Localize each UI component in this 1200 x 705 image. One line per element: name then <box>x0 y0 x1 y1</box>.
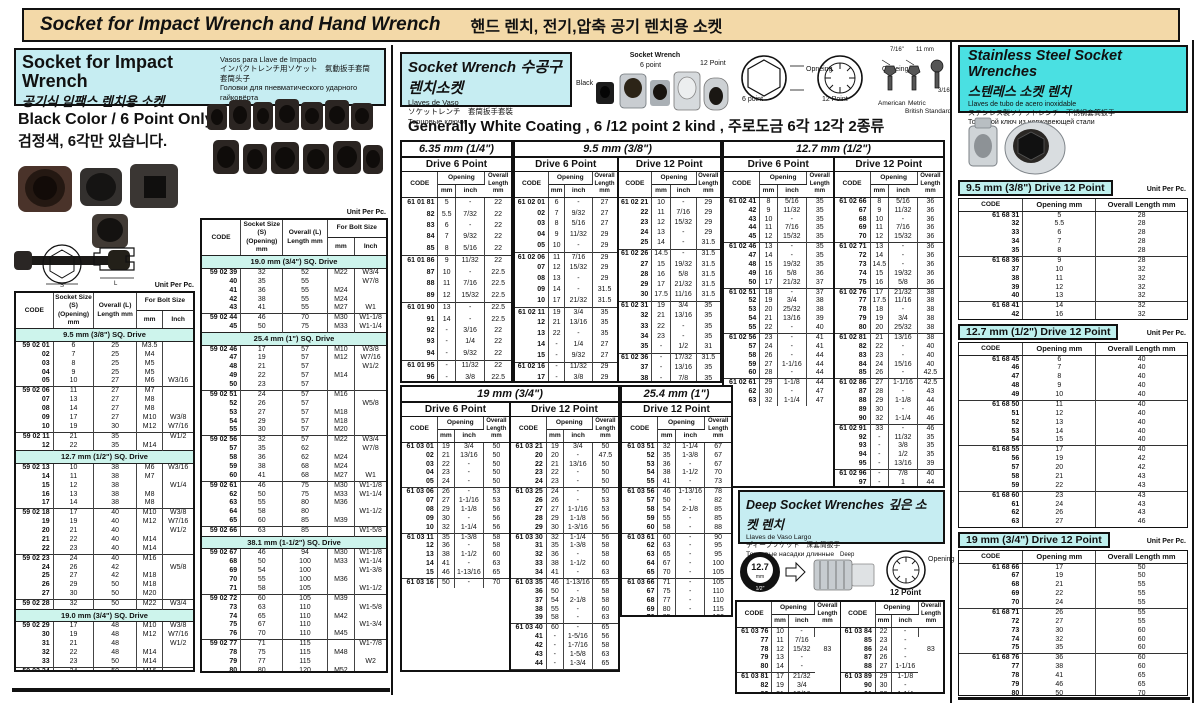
table-row: 2626-53 <box>511 497 618 506</box>
stainless-19-chip: 19 mm (3/4") Drive 12 Point <box>958 532 1110 548</box>
stainless-subtitle-es: Llaves de tubo de acero inoxidable <box>968 100 1178 109</box>
table-19-box: 19 mm (3/4") Drive 6 Point CODEOpeningOv… <box>400 385 620 672</box>
table-row: 61 03 4060-65 <box>511 624 618 633</box>
table-row: 612443 <box>959 501 1187 510</box>
table-row: 96-3/822.5 <box>402 373 511 381</box>
table-row: 9114-22.5 <box>402 314 511 325</box>
spec-table: CODEOpeningOverall Length mmmminch61 02 … <box>835 172 944 486</box>
table-row: 5541-73 <box>622 478 731 487</box>
unit-label-2: Unit Per Pc. <box>312 209 386 216</box>
table-row: 33628 <box>959 229 1187 238</box>
table-row: 784165 <box>959 672 1187 681</box>
impact-table-2: CODESocket Size (S) (Opening) mmOverall … <box>202 220 386 671</box>
table-row: 29301-3/1656 <box>511 524 618 533</box>
section-header-row: 19.0 mm (3/4") SQ. Drive <box>202 256 386 269</box>
table-row: 222340M14 <box>16 545 193 554</box>
table-row: 802025/3238 <box>835 324 944 333</box>
table-row: 59 02 232440M16 <box>16 554 193 563</box>
table-row: 583662M24 <box>202 454 386 463</box>
table-row: 6365-95 <box>622 551 731 560</box>
diagram-6point-label: 6 point <box>640 62 661 69</box>
table-row: 7055100M36 <box>202 576 386 585</box>
table-row: 5750-82 <box>622 497 731 506</box>
table-row: 61 03 35461-13/1665 <box>511 578 618 587</box>
deep-table-right: CODEOpeningOverall Length mmmminch61 03 … <box>841 602 944 692</box>
table-row: 273050M20 <box>16 590 193 599</box>
table-row: 805070 <box>959 690 1187 696</box>
table-row: 61 02 4613-35 <box>724 243 833 252</box>
table-row: 67911/3236 <box>835 207 944 216</box>
table-19-6pt-label: Drive 6 Point <box>402 403 509 417</box>
table-row: 61 02 6685/1636 <box>835 197 944 206</box>
table-row: 61 68 712655 <box>959 608 1187 617</box>
table-row: 28165/831.5 <box>619 270 721 280</box>
table-row: 93-1/422 <box>402 337 511 348</box>
socket-wrench-header: Socket Wrench 수공구 렌치소켓 Llaves de Vaso ソケ… <box>400 52 572 107</box>
table-row: 2020-47.5 <box>511 452 618 461</box>
table-row: 94-1/235 <box>835 451 944 460</box>
table-row: 403555W7/8 <box>202 278 386 287</box>
table-row: 61 02 61291-1/844 <box>724 379 833 388</box>
catalog-page: Socket for Impact Wrench and Hand Wrench… <box>0 0 1200 705</box>
table-127-box: 12.7 mm (1/2") Drive 6 Point CODEOpening… <box>722 140 945 488</box>
hex-6point-label: 6 point <box>742 96 763 103</box>
diagram-12point-label: 12 Point <box>700 60 726 67</box>
bolt-size-metric: 11 mm <box>916 47 934 53</box>
table-row: 59 02 112135W1/2 <box>16 432 193 441</box>
table-row: 04911/3229 <box>515 230 617 241</box>
table-row: 6980-115 <box>622 606 731 615</box>
svg-text:Deep: Deep <box>840 552 855 558</box>
table-row: 61 02 36-17/3231.5 <box>619 353 721 364</box>
table-row: 61 03 51321-1/467 <box>622 442 731 451</box>
table-row: 42911/3235 <box>724 207 833 216</box>
divider-right-edge <box>1192 40 1194 703</box>
table-row: 59 02 342450M16 <box>16 667 193 672</box>
stainless-127-wrap: CODEOpening mmOverall Length mm61 68 456… <box>958 342 1188 528</box>
socket-title: Socket Wrench <box>408 59 516 76</box>
stainless-19-table: CODEOpening mmOverall Length mm61 68 661… <box>959 551 1187 695</box>
table-row: 37542-1/858 <box>511 597 618 606</box>
table-row: 332350M14 <box>16 658 193 667</box>
table-row: 202140W1/2 <box>16 527 193 536</box>
table-row: 61 01 9013-22.5 <box>402 302 511 314</box>
table-row: 61 02 86271-1/1642.5 <box>835 379 944 388</box>
table-row: 252742M18 <box>16 572 193 581</box>
table-row: 59 02 614675M30W1-1/8 <box>202 481 386 490</box>
table-row: 481519/3235 <box>724 261 833 270</box>
table-row: 501721/3237 <box>724 279 833 288</box>
table-row: 656085M39 <box>202 517 386 526</box>
table-row: 542957M18 <box>202 418 386 427</box>
table-row: 836-22 <box>402 221 511 232</box>
table-row: 291721/3231.5 <box>619 280 721 290</box>
table-row: 8080120M52 <box>202 667 386 673</box>
table-row: 7567110W1-3/4 <box>202 621 386 630</box>
table-127-12pt: CODEOpeningOverall Length mmmminch61 02 … <box>835 172 944 486</box>
spec-table: CODEOpening mmOverall Length mm61 68 661… <box>959 551 1187 696</box>
spec-table: CODEOpening mmOverall Length mm61 68 315… <box>959 199 1187 320</box>
table-row: 48940 <box>959 382 1187 391</box>
bottom-bar-left <box>12 688 390 692</box>
table-row: 91321-1/4 <box>841 691 944 692</box>
table-row: 59 02 181740M10W3/8 <box>16 509 193 518</box>
table-row: 7818-38 <box>835 306 944 315</box>
table-row: 75165/836 <box>835 279 944 288</box>
stainless-19-wrap: CODEOpening mmOverall Length mm61 68 661… <box>958 550 1188 696</box>
table-row: 4310-35 <box>724 216 833 225</box>
table-row: 35-1/231 <box>619 342 721 353</box>
table-row: 071327M8 <box>16 396 193 405</box>
table-254-box: 25.4 mm (1") Drive 12 Point CODEOpeningO… <box>620 385 733 617</box>
impact-subtitle-es: Vasos para Llave de Impacto <box>220 55 378 64</box>
table-row: 61 68 45640 <box>959 355 1187 364</box>
diagram-socket-wrench-label: Socket Wrench <box>620 52 690 59</box>
svg-text:L: L <box>114 281 118 287</box>
table-row: 643046 <box>959 527 1187 528</box>
table-row: 3322-35 <box>619 322 721 332</box>
table-row: 61 03 2524-50 <box>511 488 618 497</box>
table-row: 35828 <box>959 247 1187 256</box>
table-127-title: 12.7 mm (1/2") <box>724 142 943 158</box>
table-127-12pt-label: Drive 12 Point <box>835 158 944 172</box>
table-row: 59 02 444670M30W1-1/8 <box>202 314 386 323</box>
table-row: 61 02 2614.5-31.5 <box>619 249 721 260</box>
table-row: 61 03 21193/450 <box>511 442 618 451</box>
stainless-header: Stainless Steel Socket Wrenches 스텐레스 소켓 … <box>958 45 1188 113</box>
table-row: 3650-58 <box>511 588 618 597</box>
table-row: 95-13/1639 <box>835 460 944 469</box>
table-row: 15461-13/1665 <box>402 569 509 578</box>
table-row: 5522-40 <box>724 324 833 333</box>
table-row: 8930-46 <box>835 406 944 415</box>
table-row: 61 03 1650-70 <box>402 578 509 587</box>
table-row: 482157W1/2 <box>202 363 386 372</box>
table-row: 6570-105 <box>622 569 731 578</box>
section-header-row: 38.1 mm (1-1/2") SQ. Drive <box>202 536 386 549</box>
table-row: 59 02 563257M22W3/4 <box>202 436 386 445</box>
table-row: 31351-3/858 <box>511 542 618 551</box>
table-row: 091727M10W3/8 <box>16 414 193 423</box>
standard-american-label: American <box>878 100 905 107</box>
table-row: 604168M27W1 <box>202 472 386 481</box>
spec-table: CODEOpening mmOverall Length mm61 68 456… <box>959 343 1187 528</box>
table-row: 312148W1/2 <box>16 640 193 649</box>
table-254-drive-label: Drive 12 Point <box>622 403 731 417</box>
table-row: 582143 <box>959 473 1187 482</box>
table-row: 61 02 96-7/840 <box>835 470 944 479</box>
table-row: 5955-85 <box>622 515 731 524</box>
table-row: 9030- <box>841 682 944 691</box>
table-row: 58542-1/885 <box>622 506 731 515</box>
table-row: 61 03 6671-105 <box>622 578 731 587</box>
table-row: 79193/438 <box>835 315 944 324</box>
divider-left-middle <box>391 45 393 695</box>
stainless-127-table: CODEOpening mmOverall Length mm61 68 456… <box>959 343 1187 527</box>
table-row: 891215/3222.5 <box>402 290 511 302</box>
table-row: 61 03 0626-53 <box>402 488 509 497</box>
table-row: 0524-50 <box>402 478 509 487</box>
table-row: 61 01 815-22 <box>402 197 511 209</box>
table-95-box: 9.5 mm (3/8") Drive 6 Point CODEOpeningO… <box>513 140 722 383</box>
table-row: 8710-22.5 <box>402 268 511 279</box>
table-row: 522657W5/8 <box>202 400 386 409</box>
table-row: 161338M8 <box>16 491 193 500</box>
table-row: 7158105W1-1/2 <box>202 585 386 594</box>
table-row: 2322-50 <box>511 469 618 478</box>
table-254-title: 25.4 mm (1") <box>622 387 731 403</box>
divider-middle-right <box>950 40 952 703</box>
spec-table: CODESocket Size (S) (Opening) mmOverall … <box>202 220 386 673</box>
table-row: 702455 <box>959 599 1187 608</box>
table-row: 59 02 131038M6W3/16 <box>16 463 193 472</box>
table-row: 421632 <box>959 311 1187 320</box>
table-row: 22117/1629 <box>619 208 721 218</box>
table-127-6pt: CODEOpeningOverall Length mmmminch61 02 … <box>724 172 833 486</box>
table-row: 322248M14 <box>16 649 193 658</box>
table-row: 271519/3231.5 <box>619 260 721 270</box>
table-row: 59 02 01625M3.5 <box>16 341 193 350</box>
table-row: 93-3/835 <box>835 442 944 451</box>
table-row: 28291-1/856 <box>511 515 618 524</box>
table-254: CODEOpeningOverall Length mmmminch61 03 … <box>622 417 731 615</box>
table-row: 471957M12W7/16 <box>202 354 386 363</box>
table-row: 61 68 763660 <box>959 654 1187 663</box>
page-title-banner: Socket for Impact Wrench and Hand Wrench… <box>22 8 1180 42</box>
table-row: 61 02 016-27 <box>515 197 617 208</box>
table-row: 701215/3236 <box>835 233 944 242</box>
table-row: 43-1-5/863 <box>511 651 618 660</box>
deep-title: Deep Socket Wrenches <box>746 498 884 512</box>
table-row: 825.57/3222 <box>402 209 511 220</box>
table-row: 6230-47 <box>724 388 833 397</box>
table-row: 44117/1635 <box>724 224 833 233</box>
table-95-12pt: CODEOpeningOverall Length mmmminch61 02 … <box>619 172 721 381</box>
table-row: 61 02 812113/1638 <box>835 333 944 342</box>
table-row: 59271-1/1644 <box>724 361 833 370</box>
deep-socket-header: Deep Socket Wrenches 깊은 소켓 렌치 Llaves de … <box>738 490 945 544</box>
table-row: 4714-35 <box>724 252 833 261</box>
table-row: 401332 <box>959 292 1187 301</box>
table-19-12pt: CODEOpeningOverall Length mmmminch61 03 … <box>511 417 618 670</box>
table-row: 69117/1636 <box>835 224 944 233</box>
svg-text:S: S <box>60 283 64 288</box>
table-row: 592243 <box>959 482 1187 491</box>
table-row: 8479/3222 <box>402 232 511 243</box>
table-row: 322113/1635 <box>619 312 721 322</box>
impact-note-en: Black Color / 6 Point Only <box>18 111 214 129</box>
table-row: 242642W5/8 <box>16 564 193 573</box>
table-row: 6467-100 <box>622 560 731 569</box>
table-row: 63321-1/447 <box>724 397 833 406</box>
table-19-6pt: CODEOpeningOverall Length mmmminch61 03 … <box>402 417 509 670</box>
spec-table: CODEOpeningOverall Length mmmminch61 03 … <box>737 602 840 692</box>
table-row: 82193/4 <box>737 682 840 691</box>
table-row: 61 02 761721/3238 <box>835 288 944 297</box>
table-19-title: 19 mm (3/4") <box>402 387 618 403</box>
table-row: 1236-58 <box>402 542 509 551</box>
table-row: 0510-29 <box>515 241 617 252</box>
table-row: 491040 <box>959 391 1187 400</box>
table-row: 27271-1/1653 <box>511 506 618 515</box>
table-row: 212240M14 <box>16 536 193 545</box>
table-row: 42-1-7/1658 <box>511 642 618 651</box>
table-row: 553057M20 <box>202 426 386 435</box>
table-row: 8728-43 <box>835 388 944 397</box>
table-row: 59 02 666385W1-5/8 <box>202 527 386 537</box>
table-row: 17-3/829 <box>515 373 617 381</box>
table-row: 97-144 <box>835 479 944 486</box>
table-row: 262950M18 <box>16 581 193 590</box>
table-row: 391232 <box>959 284 1187 293</box>
table-row: 3958-63 <box>511 614 618 623</box>
table-row: 5336-67 <box>622 461 731 470</box>
impact-table-1-wrap: CODESocket Size (S) (Opening) mmOverall … <box>14 291 195 672</box>
table-row: 61 03 8422-83 <box>841 627 944 636</box>
table-row: 521340 <box>959 419 1187 428</box>
stainless-127-chip: 12.7 mm (1/2") Drive 12 Point <box>958 324 1118 340</box>
table-row: 3423-35 <box>619 332 721 342</box>
table-row: 5826-44 <box>724 352 833 361</box>
socket-samples-photo <box>594 70 734 112</box>
table-row: 022113/1650 <box>402 452 509 461</box>
table-95-6pt-label: Drive 6 Point <box>515 158 617 172</box>
section-header-row: 19.0 mm (3/4") SQ. Drive <box>16 609 193 622</box>
table-row: 61 03 11351-3/858 <box>402 533 509 542</box>
table-row: 301948M12W7/16 <box>16 631 193 640</box>
table-row: 6775-110 <box>622 588 731 597</box>
table-row: 6877-110 <box>622 597 731 606</box>
table-row: 151238W1/4 <box>16 482 193 491</box>
table-row: 191940M12W7/16 <box>16 518 193 527</box>
table-row: 071215/3229 <box>515 264 617 275</box>
deep-opening-label: Opening <box>928 556 954 563</box>
table-row: 832113/16 <box>737 691 840 692</box>
table-row: 59 02 283250M22W3/4 <box>16 600 193 610</box>
table-95-title: 9.5 mm (3/8") <box>515 142 720 158</box>
table-row: 61 01 86911/3222 <box>402 256 511 268</box>
table-row: 61 03 56461-13/1678 <box>622 488 731 497</box>
table-row: 47840 <box>959 373 1187 382</box>
table-row: 61 68 501140 <box>959 400 1187 409</box>
table-row: 61 02 4185/1635 <box>724 197 833 206</box>
table-row: 7977115W2 <box>202 658 386 667</box>
table-635-title: 6.35 mm (1/4") <box>402 142 511 158</box>
spec-table: CODEOpeningOverall Length mmmminch61 02 … <box>619 172 721 381</box>
table-row: 451215/3235 <box>724 233 833 242</box>
table-row: 88291-1/844 <box>835 397 944 406</box>
table-635-drive-label: Drive 6 Point <box>402 158 511 172</box>
section-header-row: 9.5 mm (3/8") SQ. Drive <box>16 329 193 342</box>
stainless-95-chip: 9.5 mm (3/8") Drive 12 Point <box>958 180 1113 196</box>
table-row: 3236-58 <box>511 551 618 560</box>
table-row: 49165/836 <box>724 270 833 279</box>
stainless-95-table: CODEOpening mmOverall Length mm61 68 315… <box>959 199 1187 319</box>
hex-opening-label: Opneing <box>806 66 832 73</box>
table-row: 541540 <box>959 436 1187 445</box>
stainless-sockets-photo <box>965 116 1075 178</box>
table-row: 6810-36 <box>835 216 944 225</box>
table-row: 14-1/427 <box>515 340 617 351</box>
impact-socket-set-photo <box>205 96 387 184</box>
table-row: 381132 <box>959 275 1187 284</box>
table-row: 622643 <box>959 509 1187 518</box>
table-row: 632746 <box>959 518 1187 527</box>
table-row: 90321-1/446 <box>835 415 944 424</box>
stainless-title-korean: 스텐레스 소켓 렌치 <box>968 81 1178 100</box>
table-row: 531440 <box>959 428 1187 437</box>
table-row: 52193/438 <box>724 297 833 306</box>
table-row: 61 02 06117/1629 <box>515 252 617 263</box>
table-127-6pt-label: Drive 6 Point <box>724 158 833 172</box>
table-row: 61 02 2110-29 <box>619 197 721 208</box>
spec-table: CODEOpeningOverall Length mmmminch61 02 … <box>515 172 617 381</box>
impact-title-korean: 공기식 임팩스 렌치용 소켓 <box>22 91 212 110</box>
table-row: 08291-1/856 <box>402 506 509 515</box>
table-row: 561942 <box>959 455 1187 464</box>
table-row: 61 02 31193/435 <box>619 301 721 312</box>
table-row: 61 02 9133-46 <box>835 424 944 433</box>
table-row: 6028-44 <box>724 369 833 378</box>
impact-note-ko: 검정색, 6각만 있습니다. <box>18 130 167 151</box>
table-row: 3017.511/1631.5 <box>619 290 721 301</box>
table-row: 753560 <box>959 644 1187 653</box>
table-row: 773860 <box>959 663 1187 672</box>
section-header-row: 25.4 mm (1") SQ. Drive <box>202 333 386 346</box>
table-row: 37-13/1635 <box>619 364 721 374</box>
table-row: 7085-120 <box>622 614 731 615</box>
table-row: 6850100M33W1-1/4 <box>202 558 386 567</box>
table-row: 61 68 551740 <box>959 446 1187 455</box>
impact-table-1: CODESocket Size (S) (Opening) mmOverall … <box>16 293 193 670</box>
table-row: 692255 <box>959 590 1187 599</box>
table-95-12pt-label: Drive 12 Point <box>619 158 721 172</box>
table-row: 231215/3229 <box>619 218 721 228</box>
unit-label-4: Unit Per Pc. <box>1128 330 1186 337</box>
table-row: 02725M4 <box>16 351 193 360</box>
table-row: 61 03 45-1-7/867 <box>511 669 618 670</box>
table-row: 122113/1635 <box>515 318 617 329</box>
table-row: 7670110M45 <box>202 630 386 639</box>
standard-metric-label: Metric <box>908 100 926 107</box>
table-row: 141138M7 <box>16 473 193 482</box>
table-row: 7465110M42 <box>202 613 386 622</box>
table-row: 41-1-5/1656 <box>511 633 618 642</box>
table-row: 61 68 36928 <box>959 256 1187 265</box>
table-row: 8323-40 <box>835 352 944 361</box>
table-row: 61 03 89291-1/8 <box>841 673 944 682</box>
spec-table: CODESocket Size (S) (Opening) mmOverall … <box>16 293 193 672</box>
table-row: 7214-36 <box>835 252 944 261</box>
table-row: 46740 <box>959 364 1187 373</box>
table-row: 325.528 <box>959 220 1187 229</box>
table-row: 413655M24 <box>202 287 386 296</box>
table-95-6pt: CODEOpeningOverall Length mmmminch61 02 … <box>515 172 617 381</box>
table-row: 61 03 30321-1/456 <box>511 533 618 542</box>
table-row: 13381-1/260 <box>402 551 509 560</box>
table-row: 8526-42.5 <box>835 369 944 378</box>
table-row: 0914-31.5 <box>515 285 617 296</box>
bolt-size-american: 7/16" <box>890 47 904 53</box>
table-row: 3441-63 <box>511 569 618 578</box>
table-row: 842415/1640 <box>835 361 944 370</box>
table-row: 371032 <box>959 266 1187 275</box>
table-row: 0322-50 <box>402 461 509 470</box>
table-row: 59 02 393252M22W3/4 <box>202 268 386 277</box>
svg-text:12.7: 12.7 <box>751 562 769 572</box>
table-row: 61 02 7113-36 <box>835 243 944 252</box>
unit-label-3: Unit Per Pc. <box>1128 186 1186 193</box>
